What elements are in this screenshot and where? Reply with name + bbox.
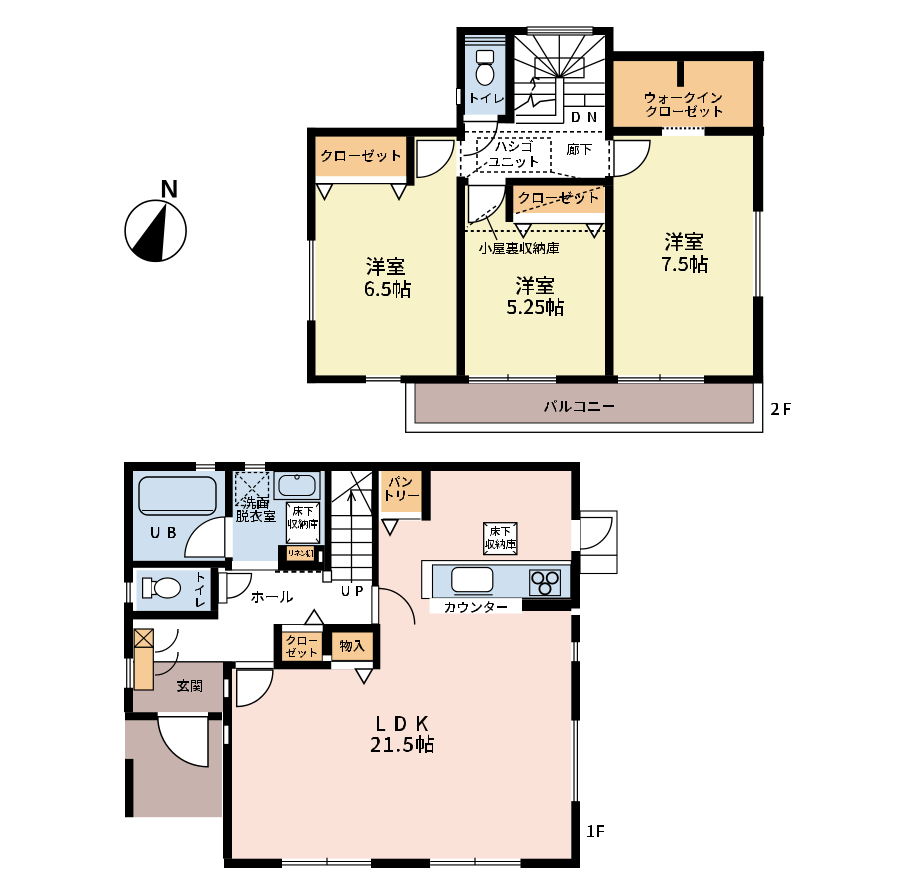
- svg-text:N: N: [160, 176, 178, 204]
